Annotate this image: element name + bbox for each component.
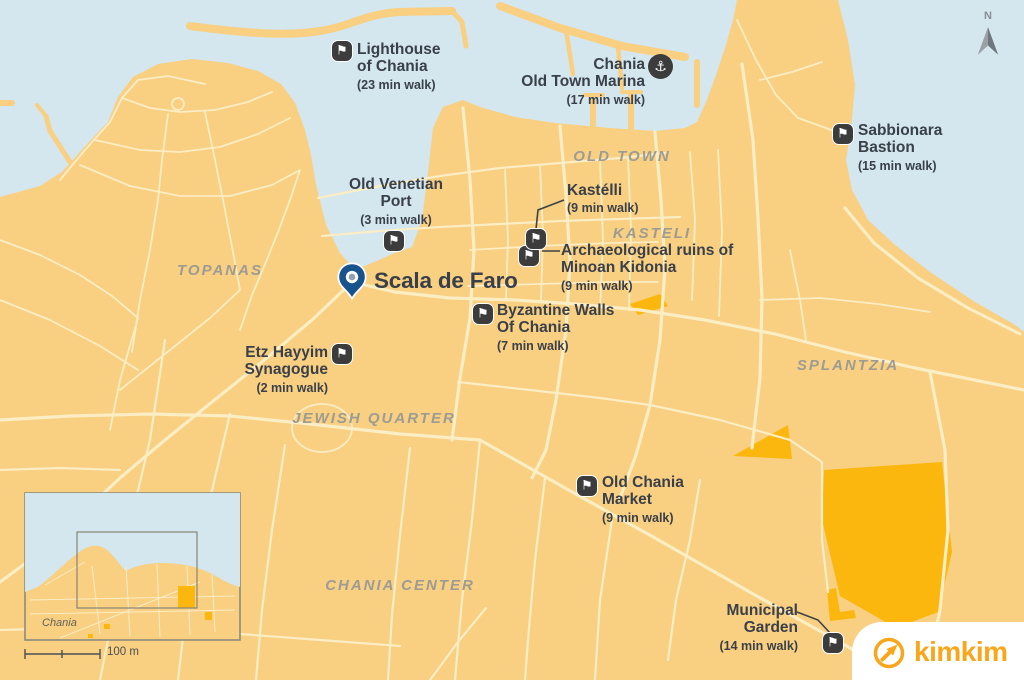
poi-name: Kastélli	[567, 182, 639, 199]
poi-sabbionara-label: Sabbionara Bastion (15 min walk)	[858, 122, 942, 173]
poi-walk-time: (14 min walk)	[720, 639, 799, 653]
poi-walk-time: (2 min walk)	[244, 381, 328, 395]
poi-walk-time: (9 min walk)	[602, 511, 684, 525]
flag-icon: ⚑	[581, 479, 593, 492]
poi-name: Lighthouse	[357, 41, 441, 58]
poi-byzantine-walls-marker[interactable]: ⚑	[472, 303, 494, 325]
main-location-name: Scala de Faro	[374, 268, 518, 294]
poi-name: Bastion	[858, 139, 942, 156]
poi-market-label: Old Chania Market (9 min walk)	[602, 474, 684, 525]
poi-kastelli-marker[interactable]: ⚑	[525, 228, 547, 250]
poi-walk-time: (9 min walk)	[561, 279, 733, 293]
poi-byzantine-walls-label: Byzantine Walls Of Chania (7 min walk)	[497, 302, 614, 353]
kimkim-wordmark: kimkim	[914, 636, 1008, 668]
poi-name: Etz Hayyim	[244, 344, 328, 361]
poi-synagogue-label: Etz Hayyim Synagogue (2 min walk)	[244, 344, 328, 395]
flag-icon: ⚑	[477, 307, 489, 320]
anchor-icon: ⚓	[654, 60, 667, 74]
poi-walk-time: (3 min walk)	[346, 213, 446, 227]
area-label-topanas: TOPANAS	[177, 262, 263, 279]
poi-walk-time: (17 min walk)	[521, 93, 645, 107]
poi-name: Sabbionara	[858, 122, 942, 139]
poi-name: Synagogue	[244, 361, 328, 378]
poi-venetian-port-label: Old Venetian Port (3 min walk)	[346, 176, 446, 227]
poi-name: Old Chania	[602, 474, 684, 491]
poi-name: of Chania	[357, 58, 441, 75]
location-pin-icon	[337, 262, 367, 300]
poi-venetian-port-marker[interactable]: ⚑	[383, 230, 405, 252]
poi-kastelli-label: Kastélli (9 min walk)	[567, 182, 639, 215]
flag-icon: ⚑	[336, 347, 348, 360]
compass-rose: N	[966, 10, 1010, 62]
poi-name: Port	[346, 193, 446, 210]
poi-name: Old Venetian	[346, 176, 446, 193]
poi-marina-label: Chania Old Town Marina (17 min walk)	[521, 56, 645, 107]
north-arrow-icon	[976, 23, 1000, 57]
poi-sabbionara-marker[interactable]: ⚑	[832, 123, 854, 145]
poi-synagogue-marker[interactable]: ⚑	[331, 343, 353, 365]
poi-ruins-label: Archaeological ruins of Minoan Kidonia (…	[561, 242, 733, 293]
poi-lighthouse-label: Lighthouse of Chania (23 min walk)	[357, 41, 441, 92]
poi-name: Market	[602, 491, 684, 508]
poi-walk-time: (23 min walk)	[357, 78, 441, 92]
flag-icon: ⚑	[336, 44, 348, 57]
area-label-chania-center: CHANIA CENTER	[325, 577, 475, 594]
area-label-old-town: OLD TOWN	[573, 148, 670, 165]
poi-name: Old Town Marina	[521, 73, 645, 90]
poi-walk-time: (15 min walk)	[858, 159, 942, 173]
chania-map: N ⚑ Lighthouse of Chania (23 min walk) ⚓…	[0, 0, 1024, 680]
poi-name: Chania	[521, 56, 645, 73]
poi-municipal-garden-label: Municipal Garden (14 min walk)	[720, 602, 799, 653]
area-label-splantzia: SPLANTZIA	[797, 357, 899, 374]
compass-north-label: N	[966, 10, 1010, 22]
inset-city-label: Chania	[42, 617, 77, 629]
poi-name: Minoan Kidonia	[561, 259, 733, 276]
scale-bar-label: 100 m	[107, 646, 139, 658]
poi-walk-time: (7 min walk)	[497, 339, 614, 353]
flag-icon: ⚑	[530, 232, 542, 245]
poi-name: Archaeological ruins of	[561, 242, 733, 259]
poi-marina-marker[interactable]: ⚓	[648, 54, 673, 79]
flag-icon: ⚑	[523, 249, 535, 262]
poi-municipal-garden-marker[interactable]: ⚑	[822, 632, 844, 654]
kimkim-brand-card[interactable]: kimkim	[852, 622, 1024, 680]
poi-lighthouse-marker[interactable]: ⚑	[331, 40, 353, 62]
flag-icon: ⚑	[388, 234, 400, 247]
poi-name: Garden	[720, 619, 799, 636]
area-label-jewish-quarter: JEWISH QUARTER	[292, 410, 456, 427]
poi-name: Municipal	[720, 602, 799, 619]
poi-name: Byzantine Walls	[497, 302, 614, 319]
poi-name: Of Chania	[497, 319, 614, 336]
flag-icon: ⚑	[827, 636, 839, 649]
flag-icon: ⚑	[837, 127, 849, 140]
poi-market-marker[interactable]: ⚑	[576, 475, 598, 497]
main-location-pin[interactable]	[337, 262, 367, 305]
kimkim-compass-logo-icon	[872, 636, 906, 670]
area-label-kasteli: KASTELI	[613, 225, 691, 242]
poi-walk-time: (9 min walk)	[567, 201, 639, 215]
